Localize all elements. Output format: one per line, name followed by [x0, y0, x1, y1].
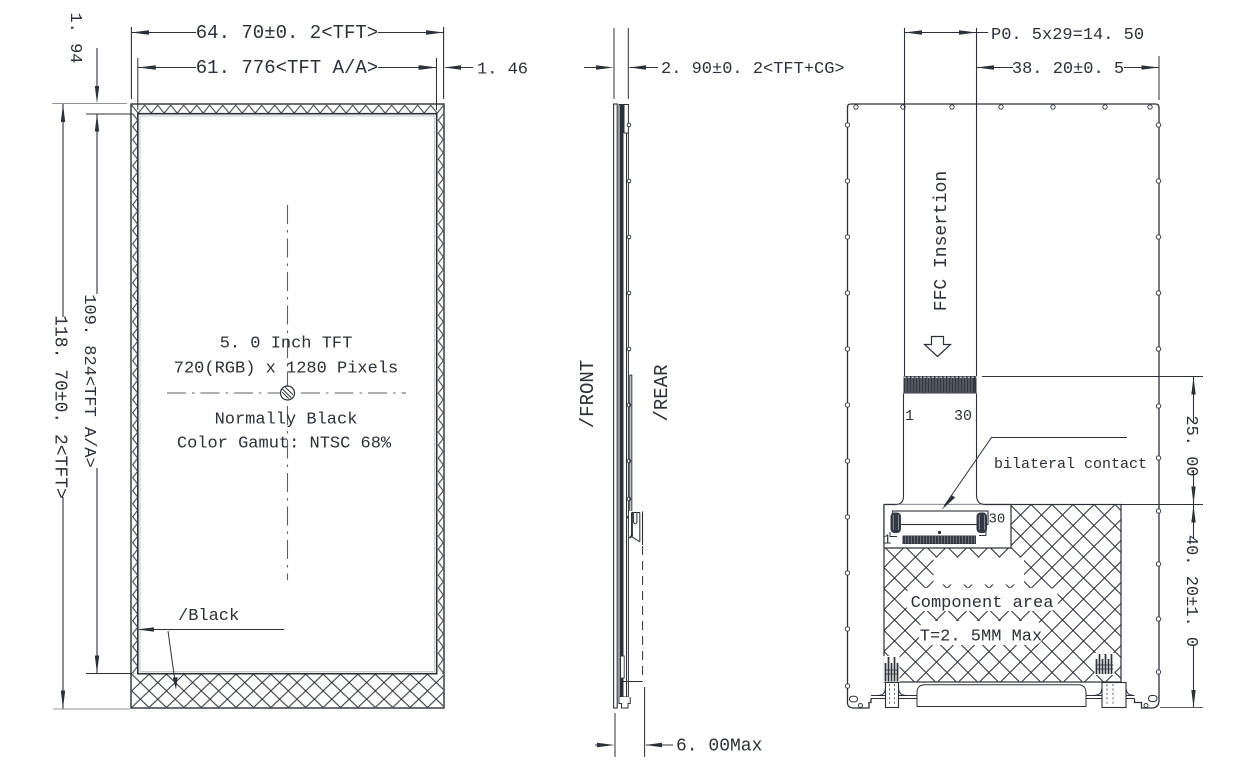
svg-text:2. 90±0. 2<TFT+CG>: 2. 90±0. 2<TFT+CG>	[661, 60, 845, 79]
svg-text:Component area: Component area	[911, 594, 1054, 613]
svg-text:Color Gamut: NTSC 68%: Color Gamut: NTSC 68%	[177, 435, 392, 454]
svg-text:1. 46: 1. 46	[477, 61, 528, 80]
svg-text:5. 0 Inch TFT: 5. 0 Inch TFT	[220, 335, 353, 354]
svg-text:38. 20±0. 5: 38. 20±0. 5	[1012, 60, 1124, 79]
svg-text:118. 70±0. 2<TFT>: 118. 70±0. 2<TFT>	[50, 315, 70, 499]
svg-text:40. 20±1. 0: 40. 20±1. 0	[1181, 535, 1200, 647]
svg-text:61. 776<TFT A/A>: 61. 776<TFT A/A>	[196, 57, 378, 79]
svg-text:6. 00Max: 6. 00Max	[676, 737, 762, 757]
svg-text:30: 30	[989, 512, 1006, 528]
svg-text:109. 824<TFT A/A>: 109. 824<TFT A/A>	[79, 294, 98, 467]
svg-text:30: 30	[954, 408, 972, 425]
svg-text:25. 00: 25. 00	[1181, 415, 1200, 476]
svg-text:bilateral contact: bilateral contact	[994, 456, 1147, 473]
svg-text:1. 94: 1. 94	[65, 12, 84, 63]
svg-text:T=2. 5MM Max: T=2. 5MM Max	[920, 628, 1042, 647]
svg-text:/REAR: /REAR	[651, 364, 673, 421]
svg-text:P0. 5x29=14. 50: P0. 5x29=14. 50	[991, 26, 1144, 45]
svg-text:Normally Black: Normally Black	[215, 411, 358, 430]
svg-text:720(RGB) x 1280 Pixels: 720(RGB) x 1280 Pixels	[174, 360, 398, 379]
svg-text:/FRONT: /FRONT	[577, 360, 599, 428]
svg-text:/Black: /Black	[178, 607, 239, 626]
svg-text:FFC Insertion: FFC Insertion	[932, 171, 952, 311]
svg-text:1: 1	[883, 533, 891, 549]
svg-text:64. 70±0. 2<TFT>: 64. 70±0. 2<TFT>	[196, 22, 378, 44]
svg-text:1: 1	[905, 408, 914, 425]
